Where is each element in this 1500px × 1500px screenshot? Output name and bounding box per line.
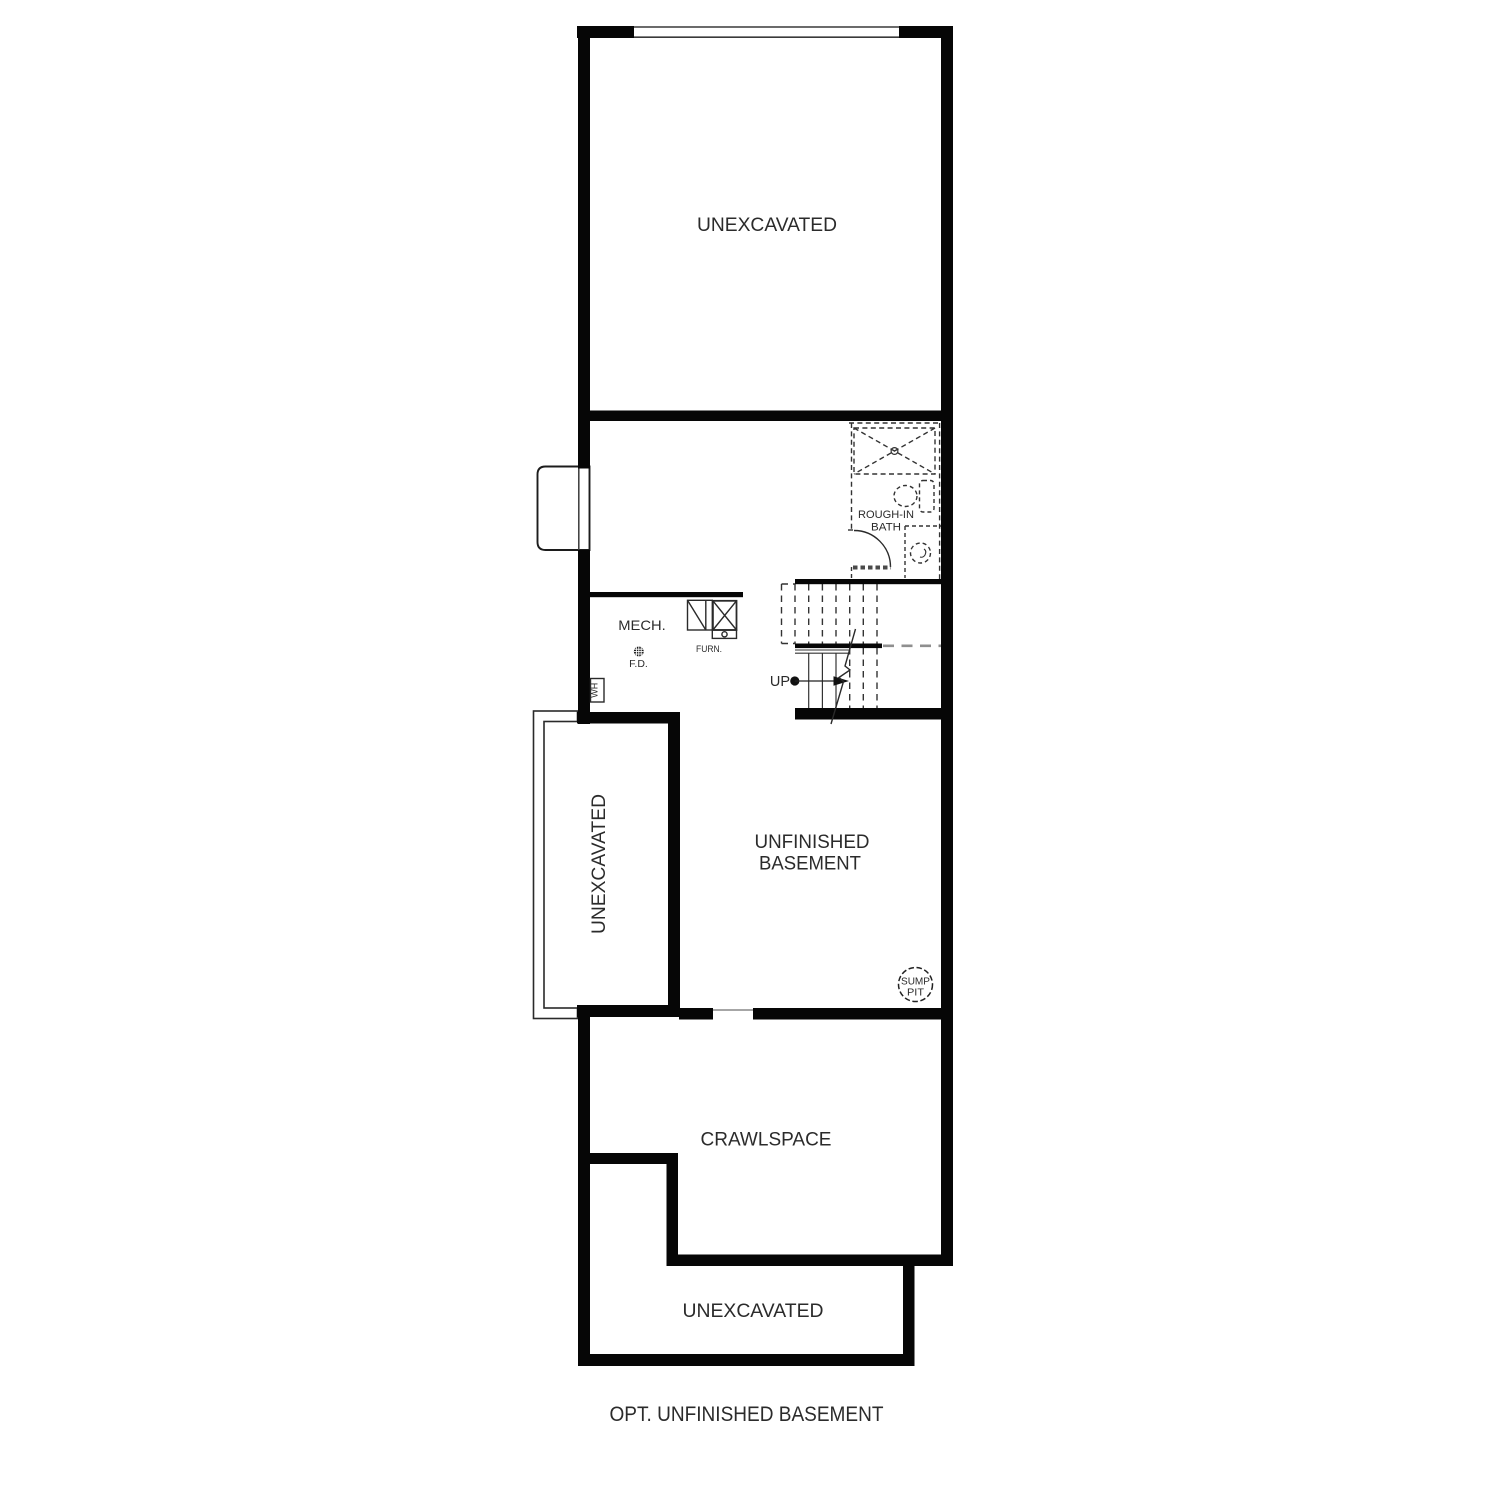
svg-text:MECH.: MECH. <box>618 618 666 633</box>
svg-text:WH: WH <box>589 683 599 698</box>
svg-text:UNEXCAVATED: UNEXCAVATED <box>697 215 837 236</box>
svg-text:ROUGH-IN: ROUGH-IN <box>858 509 914 521</box>
svg-text:CRAWLSPACE: CRAWLSPACE <box>701 1130 832 1151</box>
svg-text:BASEMENT: BASEMENT <box>759 854 861 875</box>
svg-text:UNEXCAVATED: UNEXCAVATED <box>589 794 610 934</box>
svg-text:UNFINISHED: UNFINISHED <box>755 832 870 853</box>
svg-text:BATH: BATH <box>871 522 901 534</box>
svg-text:SUMP: SUMP <box>901 977 930 988</box>
svg-text:UP: UP <box>770 674 790 690</box>
svg-text:PIT: PIT <box>907 988 924 999</box>
svg-text:OPT. UNFINISHED BASEMENT: OPT. UNFINISHED BASEMENT <box>610 1403 884 1426</box>
svg-text:UNEXCAVATED: UNEXCAVATED <box>683 1301 824 1322</box>
svg-text:FURN.: FURN. <box>696 644 722 655</box>
svg-text:F.D.: F.D. <box>629 658 648 670</box>
